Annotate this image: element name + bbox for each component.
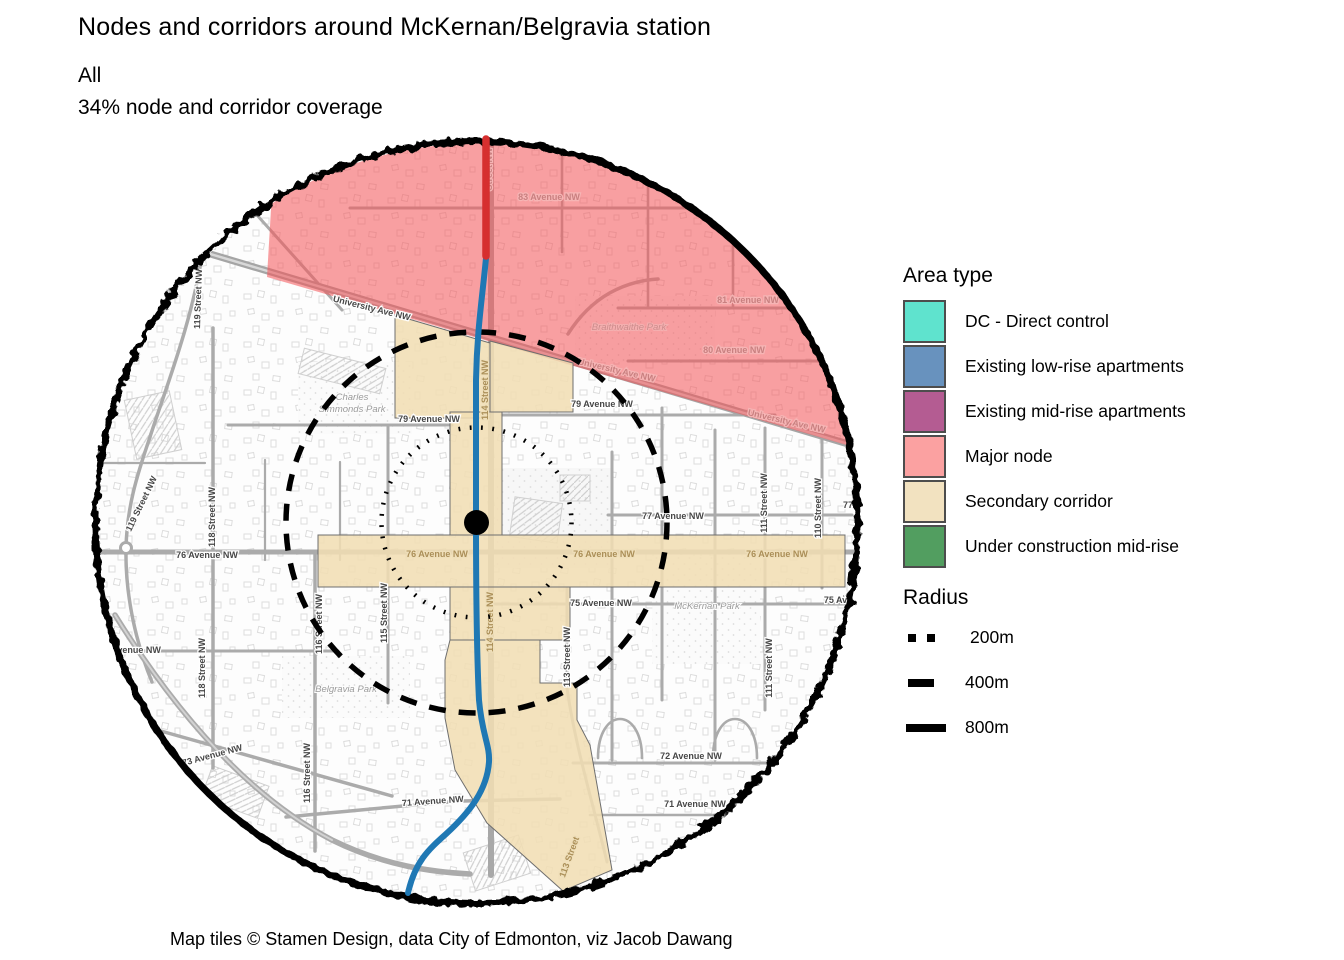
swatch-secondary-corridor bbox=[903, 480, 946, 523]
legend-label: Existing mid-rise apartments bbox=[965, 401, 1186, 422]
legend-label: Secondary corridor bbox=[965, 491, 1113, 512]
street-label: 76 Avenue NW bbox=[573, 549, 635, 559]
legend-item-under-construction: Under construction mid-rise bbox=[903, 524, 1344, 569]
legend-item-secondary-corridor: Secondary corridor bbox=[903, 479, 1344, 524]
legend-area-type-title: Area type bbox=[903, 264, 1344, 288]
street-label: 72 Avenue NW bbox=[660, 751, 722, 761]
street-label: 113 Street NW bbox=[562, 626, 572, 687]
park-label: Braithwaithe Park bbox=[592, 322, 668, 333]
swatch-under-construction bbox=[903, 525, 946, 568]
legend-label: 400m bbox=[965, 672, 1009, 693]
park-label: Charles bbox=[336, 392, 369, 403]
street-label: 77 Avenue NW bbox=[642, 511, 704, 521]
street-label: 116 Street NW bbox=[302, 742, 312, 803]
street-label: 118 Street NW bbox=[197, 637, 207, 698]
dashed-line-key bbox=[903, 679, 946, 687]
legend-item-radius-800m: 800m bbox=[903, 705, 1344, 750]
caption: Map tiles © Stamen Design, data City of … bbox=[170, 929, 733, 950]
street-label: 114 Street NW bbox=[485, 591, 495, 652]
legend-label: DC - Direct control bbox=[965, 311, 1109, 332]
street-label: 114 Street NW bbox=[480, 359, 490, 420]
street-label: 77 bbox=[843, 500, 853, 510]
street-label: 110 Street NW bbox=[813, 477, 823, 538]
street-label: 119 Street NW bbox=[192, 268, 204, 329]
legend-label: Existing low-rise apartments bbox=[965, 356, 1184, 377]
subtitle-line1: All bbox=[78, 64, 101, 88]
street-label: 71 Avenue NW bbox=[664, 799, 726, 809]
street-label: 76 Avenue NW bbox=[406, 549, 468, 559]
legend-item-existing-low-rise: Existing low-rise apartments bbox=[903, 344, 1344, 389]
street-label: 81 Avenue NW bbox=[717, 295, 779, 305]
legend: Area type DC - Direct control Existing l… bbox=[903, 264, 1344, 750]
station-dot bbox=[464, 510, 489, 535]
legend-radius-title: Radius bbox=[903, 586, 1344, 610]
park-label: Belgravia Park bbox=[315, 684, 378, 695]
street-label: 111 Street NW bbox=[764, 638, 774, 698]
legend-label: 200m bbox=[970, 627, 1014, 648]
street-label: 75 Avenue NW bbox=[570, 598, 632, 608]
legend-label: Major node bbox=[965, 446, 1053, 467]
subtitle-line2: 34% node and corridor coverage bbox=[78, 96, 383, 120]
legend-item-radius-200m: 200m bbox=[903, 615, 1344, 660]
street-label: 76 Avenue NW bbox=[746, 549, 808, 559]
street-label: 74 Avenue NW bbox=[99, 645, 161, 655]
street-label: 76 Avenue NW bbox=[176, 550, 238, 560]
legend-item-radius-400m: 400m bbox=[903, 660, 1344, 705]
street-label: 80 Avenue NW bbox=[703, 345, 765, 355]
legend-label: 800m bbox=[965, 717, 1009, 738]
street-label: 111 Street NW bbox=[759, 473, 769, 533]
street-label: 115 Street NW bbox=[379, 582, 389, 643]
park-label: McKernan Park bbox=[674, 601, 741, 612]
legend-item-dc-direct-control: DC - Direct control bbox=[903, 299, 1344, 344]
swatch-existing-mid-rise bbox=[903, 390, 946, 433]
street-label: 79 Avenue NW bbox=[398, 414, 460, 424]
swatch-existing-low-rise bbox=[903, 345, 946, 388]
swatch-major-node bbox=[903, 435, 946, 478]
street-label: 83 Avenue NW bbox=[518, 192, 580, 202]
legend-item-major-node: Major node bbox=[903, 434, 1344, 479]
solid-line-key bbox=[903, 724, 946, 732]
legend-label: Under construction mid-rise bbox=[965, 536, 1179, 557]
street-label: 118 Street NW bbox=[207, 486, 217, 547]
swatch-dc-direct-control bbox=[903, 300, 946, 343]
page-title: Nodes and corridors around McKernan/Belg… bbox=[78, 13, 711, 42]
legend-item-existing-mid-rise: Existing mid-rise apartments bbox=[903, 389, 1344, 434]
dotted-line-key bbox=[903, 634, 951, 642]
